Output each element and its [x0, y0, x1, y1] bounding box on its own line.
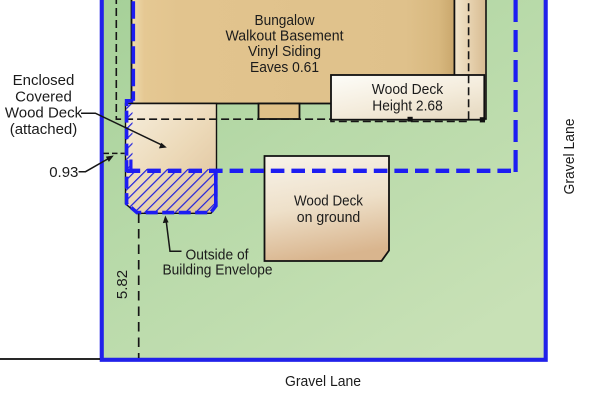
svg-text:Eaves 0.61: Eaves 0.61 [250, 59, 319, 76]
svg-text:Vinyl Siding: Vinyl Siding [248, 43, 321, 60]
svg-text:Building Envelope: Building Envelope [163, 262, 273, 279]
svg-text:Walkout Basement: Walkout Basement [226, 28, 345, 45]
svg-text:Wood Deck: Wood Deck [294, 192, 363, 209]
svg-text:on ground: on ground [297, 209, 361, 226]
svg-text:Wood Deck: Wood Deck [5, 105, 83, 122]
svg-text:Wood Deck: Wood Deck [372, 81, 444, 98]
svg-text:Enclosed: Enclosed [13, 72, 75, 89]
svg-text:0.93: 0.93 [49, 164, 78, 181]
svg-text:Gravel Lane: Gravel Lane [561, 119, 578, 195]
svg-text:Bungalow: Bungalow [255, 12, 315, 29]
svg-text:(attached): (attached) [10, 121, 78, 138]
svg-text:Gravel Lane: Gravel Lane [285, 373, 361, 390]
svg-text:Covered: Covered [15, 88, 72, 105]
svg-text:Height 2.68: Height 2.68 [372, 97, 443, 114]
svg-text:5.82: 5.82 [114, 270, 131, 299]
